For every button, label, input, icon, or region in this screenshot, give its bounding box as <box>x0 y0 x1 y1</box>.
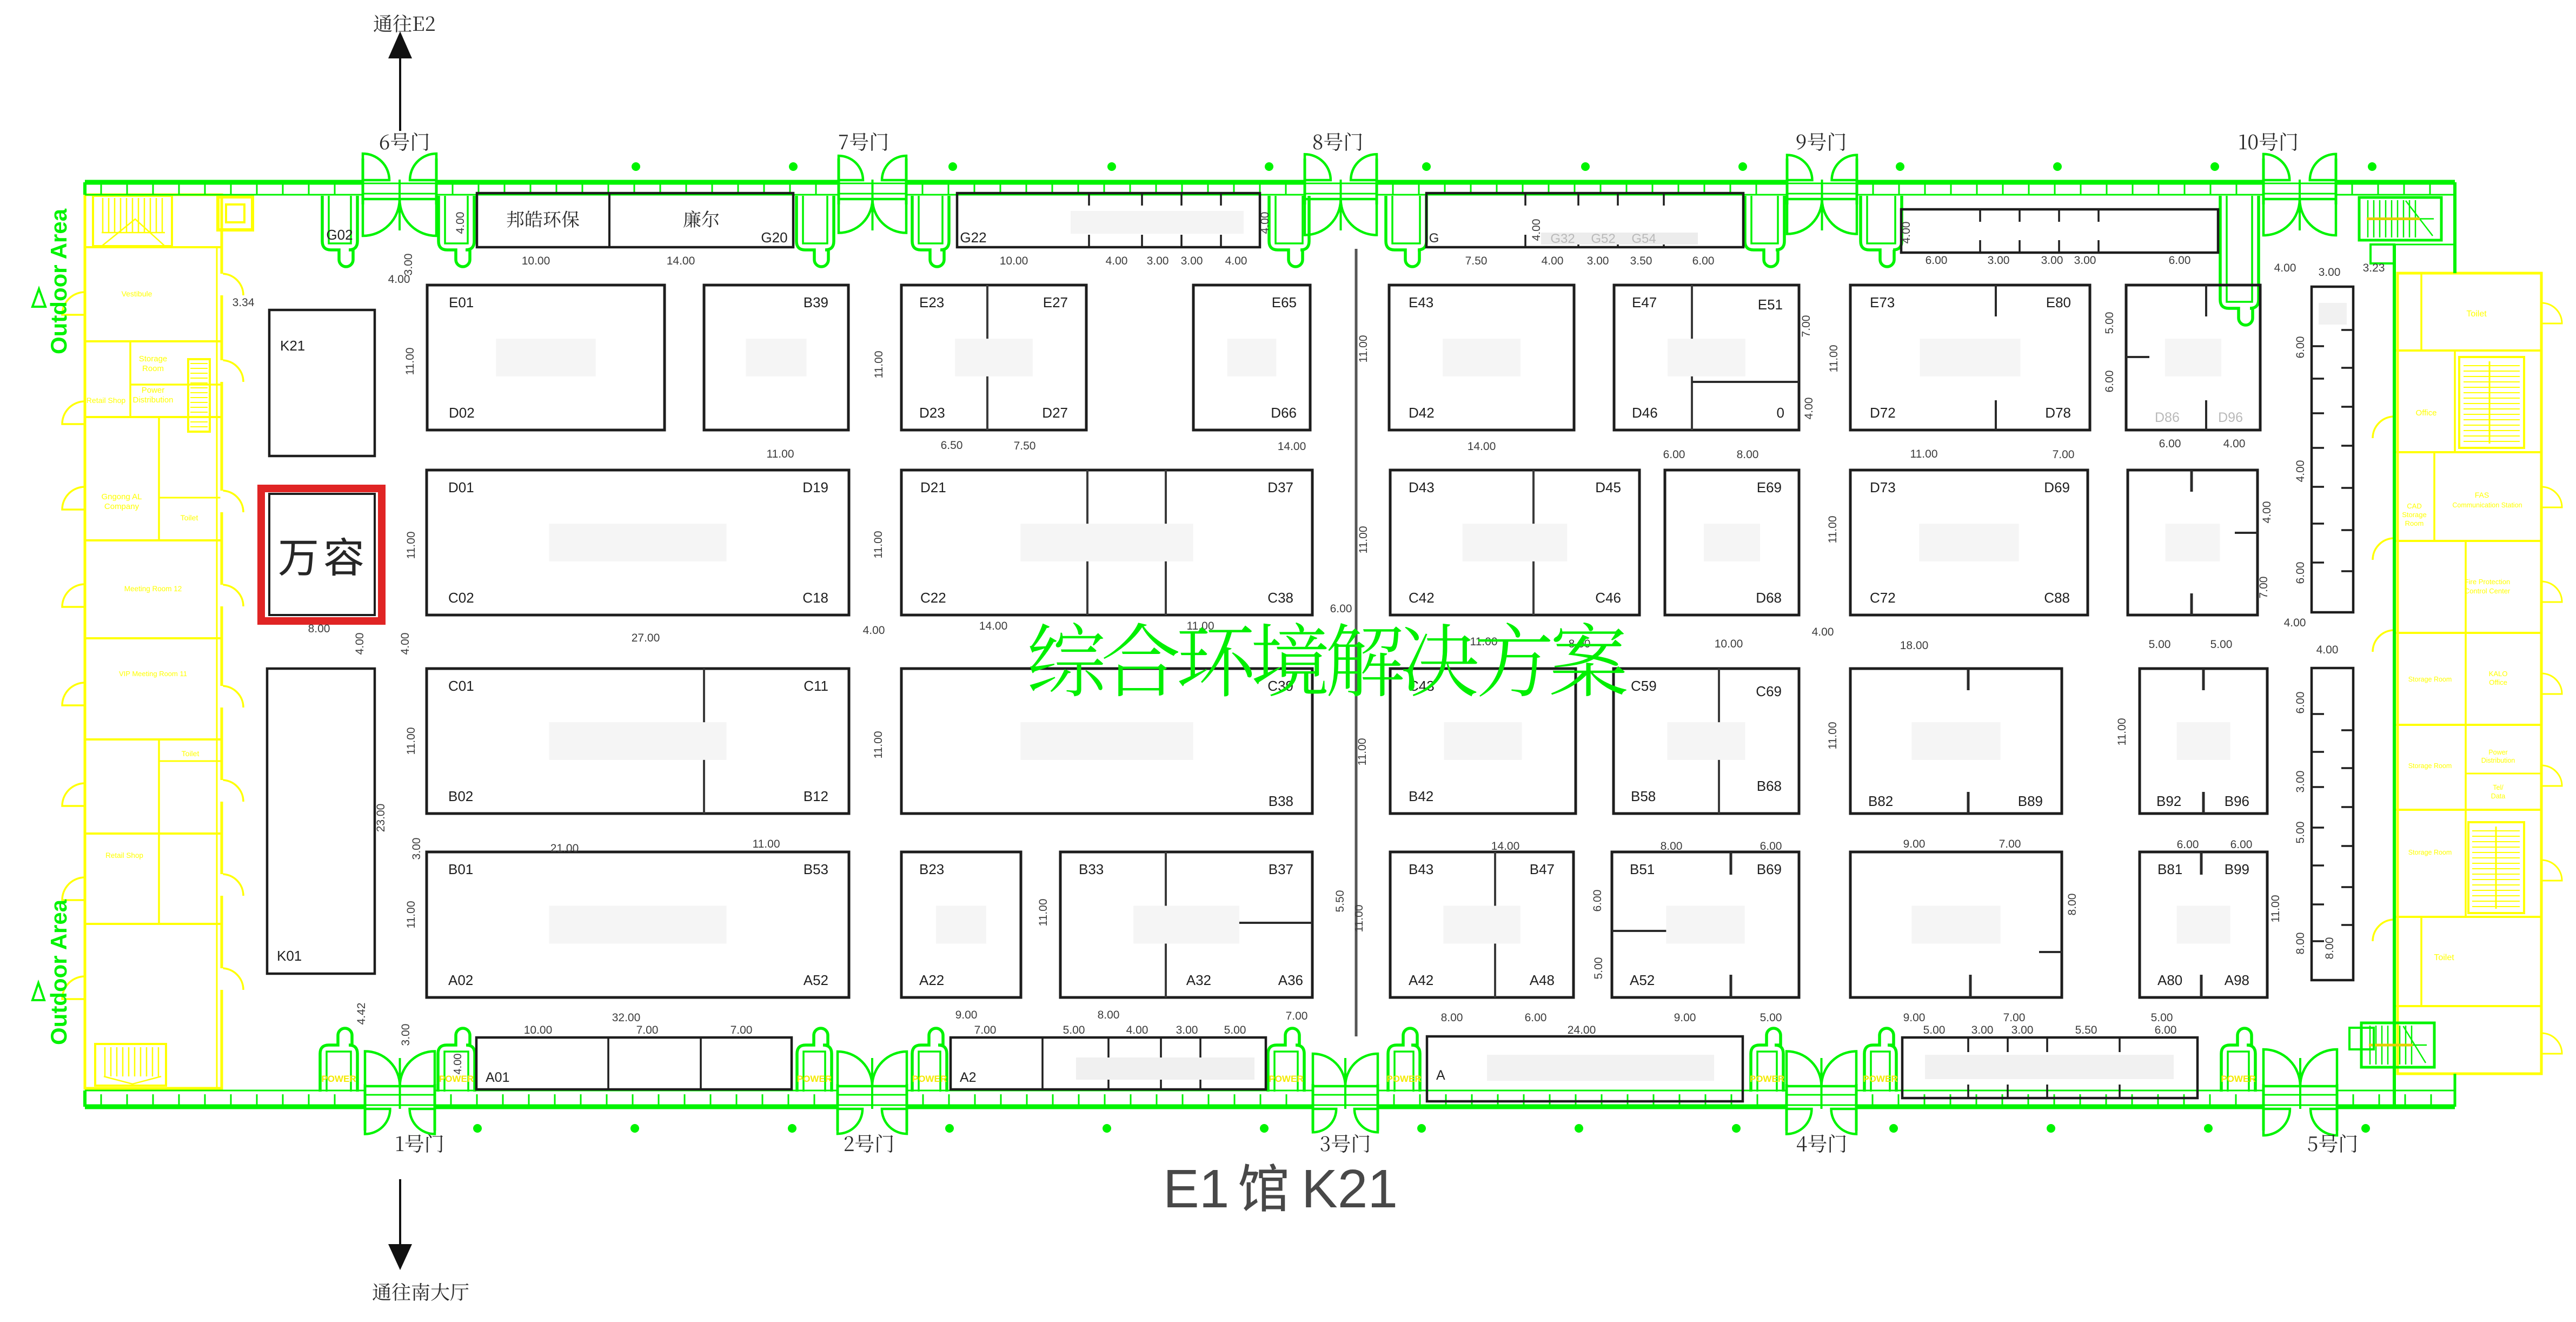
svg-text:23.00: 23.00 <box>375 804 387 832</box>
svg-text:5.50: 5.50 <box>1334 890 1346 913</box>
svg-text:11.00: 11.00 <box>1037 899 1050 927</box>
svg-text:Toilet: Toilet <box>2434 953 2454 962</box>
svg-text:6.00: 6.00 <box>2103 371 2116 393</box>
svg-text:G32: G32 <box>1550 232 1575 246</box>
svg-text:D78: D78 <box>2045 405 2071 421</box>
svg-text:POWER: POWER <box>1863 1074 1897 1084</box>
svg-text:11.00: 11.00 <box>1910 448 1938 460</box>
svg-text:Room: Room <box>2405 519 2424 527</box>
svg-text:6.00: 6.00 <box>2177 838 2199 851</box>
svg-text:B39: B39 <box>804 294 828 310</box>
svg-text:G: G <box>1429 231 1439 246</box>
svg-text:B38: B38 <box>1269 793 1293 809</box>
svg-text:8.00: 8.00 <box>1661 840 1683 852</box>
svg-text:11.00: 11.00 <box>2269 895 2282 923</box>
svg-text:A36: A36 <box>1278 972 1303 988</box>
svg-text:D42: D42 <box>1409 405 1435 421</box>
svg-text:8.00: 8.00 <box>2066 894 2079 916</box>
svg-text:4.00: 4.00 <box>454 212 467 234</box>
svg-text:6.00: 6.00 <box>2230 838 2253 851</box>
svg-text:POWER: POWER <box>797 1074 832 1084</box>
svg-text:C42: C42 <box>1409 590 1435 606</box>
svg-text:E01: E01 <box>449 294 474 310</box>
svg-text:POWER: POWER <box>912 1074 947 1084</box>
svg-text:3.00: 3.00 <box>400 1024 412 1046</box>
svg-text:7.50: 7.50 <box>1465 255 1488 267</box>
svg-text:9.00: 9.00 <box>955 1009 978 1021</box>
svg-text:D21: D21 <box>920 479 946 495</box>
svg-text:7.50: 7.50 <box>1014 440 1036 452</box>
svg-text:5.00: 5.00 <box>1063 1024 1085 1036</box>
svg-text:11.00: 11.00 <box>753 838 780 850</box>
svg-text:Meeting Room 12: Meeting Room 12 <box>124 585 182 593</box>
svg-text:E69: E69 <box>1757 479 1782 495</box>
svg-text:11.00: 11.00 <box>1357 335 1370 363</box>
svg-text:Outdoor Area: Outdoor Area <box>46 899 71 1045</box>
svg-text:POWER: POWER <box>1386 1074 1421 1084</box>
svg-text:A52: A52 <box>1630 972 1655 988</box>
svg-text:D72: D72 <box>1870 405 1896 421</box>
svg-text:B01: B01 <box>448 861 473 877</box>
svg-text:D86: D86 <box>2155 410 2180 425</box>
svg-text:Retail Shop: Retail Shop <box>105 851 143 860</box>
svg-text:CAD: CAD <box>2407 502 2421 510</box>
svg-text:POWER: POWER <box>321 1074 356 1084</box>
svg-text:4.00: 4.00 <box>354 633 366 655</box>
svg-text:B99: B99 <box>2225 861 2249 877</box>
svg-text:4.00: 4.00 <box>2261 501 2273 524</box>
svg-text:Outdoor Area: Outdoor Area <box>46 208 71 354</box>
svg-text:4.00: 4.00 <box>1126 1024 1148 1036</box>
svg-text:Storage: Storage <box>139 354 168 363</box>
svg-text:Vestibule: Vestibule <box>122 289 152 298</box>
svg-text:Distribution: Distribution <box>2481 757 2515 764</box>
svg-text:3.00: 3.00 <box>1587 255 1609 267</box>
svg-text:D37: D37 <box>1267 479 1293 495</box>
svg-text:14.00: 14.00 <box>667 255 695 267</box>
svg-text:4.00: 4.00 <box>1812 626 1834 638</box>
svg-text:4.00: 4.00 <box>2316 644 2339 656</box>
svg-text:3.00: 3.00 <box>2041 254 2063 267</box>
svg-text:7.00: 7.00 <box>1800 315 1813 338</box>
svg-text:B43: B43 <box>1409 861 1433 877</box>
svg-text:A: A <box>1436 1068 1445 1083</box>
svg-text:24.00: 24.00 <box>1568 1024 1596 1036</box>
svg-text:7.00: 7.00 <box>2003 1012 2026 1024</box>
svg-text:9.00: 9.00 <box>1903 838 1926 850</box>
svg-text:5.00: 5.00 <box>2294 822 2307 844</box>
svg-text:3.00: 3.00 <box>2011 1024 2034 1036</box>
svg-text:4.00: 4.00 <box>1803 398 1815 420</box>
svg-text:6.00: 6.00 <box>1663 448 1685 461</box>
svg-text:6.00: 6.00 <box>2294 692 2307 714</box>
svg-text:8.00: 8.00 <box>1441 1012 1463 1024</box>
svg-text:C59: C59 <box>1631 678 1657 694</box>
svg-text:3.23: 3.23 <box>2363 262 2385 274</box>
svg-text:Distribution: Distribution <box>132 395 173 405</box>
svg-text:6.00: 6.00 <box>2169 254 2191 267</box>
svg-text:B37: B37 <box>1269 861 1293 877</box>
svg-text:C02: C02 <box>448 590 474 606</box>
svg-text:E80: E80 <box>2046 294 2071 310</box>
svg-text:0: 0 <box>1777 405 1784 421</box>
svg-text:B12: B12 <box>804 788 828 804</box>
svg-text:3.00: 3.00 <box>1176 1024 1198 1036</box>
svg-text:5.00: 5.00 <box>1923 1024 1946 1036</box>
svg-text:B42: B42 <box>1409 788 1433 804</box>
svg-text:5.00: 5.00 <box>2149 638 2171 651</box>
svg-text:14.00: 14.00 <box>1278 440 1306 453</box>
svg-text:3.00: 3.00 <box>410 838 423 860</box>
svg-text:8.00: 8.00 <box>1737 448 1759 461</box>
svg-text:Toilet: Toilet <box>181 513 198 522</box>
svg-text:A01: A01 <box>486 1070 509 1085</box>
svg-text:VIP Meeting Room 11: VIP Meeting Room 11 <box>119 670 187 678</box>
svg-text:4.00: 4.00 <box>452 1054 464 1075</box>
svg-text:D66: D66 <box>1271 405 1297 421</box>
svg-text:3.00: 3.00 <box>402 254 415 276</box>
svg-text:5.00: 5.00 <box>1224 1024 1246 1036</box>
svg-text:11.00: 11.00 <box>405 728 417 755</box>
svg-text:6.00: 6.00 <box>1926 254 1948 267</box>
svg-text:B89: B89 <box>2018 793 2043 809</box>
svg-text:4.00: 4.00 <box>2274 262 2296 274</box>
svg-text:4.00: 4.00 <box>2284 617 2306 629</box>
svg-text:3.34: 3.34 <box>233 296 255 309</box>
svg-text:4.00: 4.00 <box>1542 255 1564 267</box>
svg-text:8.00: 8.00 <box>308 623 330 635</box>
svg-text:8.00: 8.00 <box>2294 933 2307 955</box>
svg-text:A42: A42 <box>1409 972 1433 988</box>
svg-text:B33: B33 <box>1079 861 1104 877</box>
svg-text:E47: E47 <box>1632 294 1657 310</box>
svg-text:Tel/: Tel/ <box>2493 784 2504 791</box>
svg-text:4.00: 4.00 <box>1106 255 1128 267</box>
svg-text:B23: B23 <box>919 861 944 877</box>
svg-text:10.00: 10.00 <box>1715 638 1743 650</box>
svg-text:3.00: 3.00 <box>1971 1024 1994 1036</box>
svg-text:A98: A98 <box>2225 972 2249 988</box>
svg-text:POWER: POWER <box>439 1074 474 1084</box>
svg-text:Office: Office <box>2489 678 2507 686</box>
svg-text:3.00: 3.00 <box>2074 254 2096 267</box>
svg-text:C72: C72 <box>1870 590 1896 606</box>
svg-text:7.00: 7.00 <box>1286 1010 1308 1022</box>
svg-text:10.00: 10.00 <box>524 1024 553 1036</box>
svg-text:D23: D23 <box>919 405 945 421</box>
svg-text:11.00: 11.00 <box>872 731 885 759</box>
svg-text:14.00: 14.00 <box>1468 440 1496 453</box>
svg-text:B51: B51 <box>1630 861 1655 877</box>
svg-text:C69: C69 <box>1756 683 1782 699</box>
svg-text:5.50: 5.50 <box>2075 1024 2097 1036</box>
svg-text:D46: D46 <box>1632 405 1658 421</box>
svg-text:3.00: 3.00 <box>1147 255 1169 267</box>
svg-text:6.00: 6.00 <box>1330 603 1352 615</box>
svg-text:A52: A52 <box>804 972 828 988</box>
svg-text:11.00: 11.00 <box>872 531 885 559</box>
svg-text:8.00: 8.00 <box>1098 1009 1120 1021</box>
svg-text:Power: Power <box>142 386 165 395</box>
svg-text:3.00: 3.00 <box>2319 266 2341 279</box>
svg-text:Toilet: Toilet <box>182 749 200 758</box>
svg-text:B82: B82 <box>1868 793 1893 809</box>
svg-text:11.00: 11.00 <box>1828 345 1840 373</box>
svg-text:Company: Company <box>104 502 140 511</box>
svg-text:11.00: 11.00 <box>767 448 794 460</box>
svg-text:D68: D68 <box>1756 590 1782 606</box>
svg-text:7.00: 7.00 <box>731 1024 753 1036</box>
svg-text:6.00: 6.00 <box>1760 840 1782 852</box>
svg-text:G52: G52 <box>1591 232 1615 246</box>
svg-text:5.00: 5.00 <box>2151 1012 2173 1024</box>
svg-text:C18: C18 <box>802 590 828 606</box>
svg-text:Storage Room: Storage Room <box>2408 849 2452 856</box>
svg-text:6.00: 6.00 <box>1591 890 1604 912</box>
svg-text:B02: B02 <box>448 788 473 804</box>
svg-text:A2: A2 <box>960 1070 977 1085</box>
svg-text:Gngong AL: Gngong AL <box>101 492 142 501</box>
svg-text:27.00: 27.00 <box>632 632 660 644</box>
svg-text:5.00: 5.00 <box>2103 312 2116 334</box>
svg-text:D69: D69 <box>2044 479 2070 495</box>
svg-text:POWER: POWER <box>1750 1074 1784 1084</box>
svg-text:D19: D19 <box>802 479 828 495</box>
svg-text:5.00: 5.00 <box>2210 638 2233 651</box>
svg-text:Control Center: Control Center <box>2465 587 2511 595</box>
svg-text:Room: Room <box>142 364 164 373</box>
svg-text:11.00: 11.00 <box>1357 526 1370 554</box>
svg-text:11.00: 11.00 <box>1353 905 1365 933</box>
svg-text:11.00: 11.00 <box>1470 636 1498 648</box>
svg-text:Power: Power <box>2488 749 2507 756</box>
svg-text:E51: E51 <box>1758 296 1783 313</box>
svg-text:5.00: 5.00 <box>1760 1012 1782 1024</box>
svg-text:9.00: 9.00 <box>1674 1012 1696 1024</box>
svg-text:6.00: 6.00 <box>1692 255 1715 267</box>
svg-text:E43: E43 <box>1409 294 1433 310</box>
svg-text:Retail Shop: Retail Shop <box>87 396 126 405</box>
svg-text:6.50: 6.50 <box>941 439 963 452</box>
svg-text:C38: C38 <box>1267 590 1293 606</box>
svg-text:G02: G02 <box>326 227 353 243</box>
svg-text:FAS: FAS <box>2475 491 2489 499</box>
svg-text:6.00: 6.00 <box>2159 438 2181 450</box>
svg-text:4.00: 4.00 <box>1900 222 1913 244</box>
svg-text:32.00: 32.00 <box>612 1012 641 1024</box>
svg-text:9.00: 9.00 <box>1903 1012 1926 1024</box>
svg-text:B47: B47 <box>1530 861 1555 877</box>
svg-text:Storage Room: Storage Room <box>2408 676 2452 683</box>
svg-text:B69: B69 <box>1757 861 1782 877</box>
svg-text:18.00: 18.00 <box>1900 639 1929 652</box>
svg-text:B58: B58 <box>1631 788 1656 804</box>
svg-text:B96: B96 <box>2225 793 2249 809</box>
svg-text:E65: E65 <box>1272 294 1297 310</box>
svg-text:14.00: 14.00 <box>1491 840 1520 852</box>
svg-text:C46: C46 <box>1595 590 1621 606</box>
svg-text:K01: K01 <box>277 948 302 964</box>
svg-text:G20: G20 <box>761 229 787 246</box>
svg-text:3.00: 3.00 <box>1988 254 2010 267</box>
svg-text:A48: A48 <box>1530 972 1555 988</box>
svg-text:K21: K21 <box>1302 1159 1398 1219</box>
svg-text:C01: C01 <box>448 678 474 694</box>
svg-text:G22: G22 <box>960 229 986 246</box>
svg-text:B92: B92 <box>2156 793 2181 809</box>
svg-text:D96: D96 <box>2218 410 2243 425</box>
svg-text:11.00: 11.00 <box>405 901 417 929</box>
svg-text:11.00: 11.00 <box>2116 718 2128 746</box>
svg-text:Storage Room: Storage Room <box>2408 762 2452 770</box>
svg-text:A02: A02 <box>448 972 473 988</box>
svg-text:D27: D27 <box>1042 405 1068 421</box>
svg-text:A22: A22 <box>919 972 944 988</box>
svg-text:C88: C88 <box>2044 590 2070 606</box>
svg-text:Communication Station: Communication Station <box>2452 501 2522 509</box>
svg-text:7.00: 7.00 <box>636 1024 659 1036</box>
svg-text:10.00: 10.00 <box>1000 255 1028 267</box>
svg-text:6.00: 6.00 <box>2294 562 2307 584</box>
svg-text:B81: B81 <box>2157 861 2182 877</box>
svg-text:4.00: 4.00 <box>1225 255 1247 267</box>
svg-text:11.00: 11.00 <box>1827 722 1839 750</box>
svg-text:7.00: 7.00 <box>2258 577 2270 599</box>
svg-text:Toilet: Toilet <box>2466 309 2487 319</box>
svg-text:B53: B53 <box>804 861 828 877</box>
svg-text:E73: E73 <box>1870 294 1895 310</box>
svg-text:KALO: KALO <box>2489 670 2508 678</box>
svg-text:4.00: 4.00 <box>1530 219 1543 241</box>
svg-text:Storage: Storage <box>2402 511 2427 519</box>
svg-text:3.50: 3.50 <box>1630 255 1652 267</box>
svg-text:A80: A80 <box>2157 972 2182 988</box>
svg-text:10.00: 10.00 <box>522 255 550 267</box>
svg-text:21.00: 21.00 <box>550 842 579 855</box>
svg-text:11.00: 11.00 <box>404 348 416 375</box>
svg-text:8.00: 8.00 <box>2323 937 2336 960</box>
svg-text:4.00: 4.00 <box>1259 212 1271 234</box>
svg-text:6.00: 6.00 <box>2155 1024 2177 1036</box>
svg-text:4.00: 4.00 <box>2294 460 2307 482</box>
svg-text:E1: E1 <box>1163 1159 1229 1219</box>
svg-text:K21: K21 <box>280 338 305 354</box>
svg-text:E27: E27 <box>1043 294 1068 310</box>
svg-text:B68: B68 <box>1757 778 1782 794</box>
svg-text:D43: D43 <box>1409 479 1435 495</box>
svg-text:D02: D02 <box>449 405 475 421</box>
svg-text:POWER: POWER <box>2221 1074 2255 1084</box>
svg-text:4.00: 4.00 <box>2223 438 2246 450</box>
svg-text:11.00: 11.00 <box>405 532 417 559</box>
svg-text:11.00: 11.00 <box>1827 516 1839 544</box>
svg-text:Fire Protection: Fire Protection <box>2465 578 2511 586</box>
svg-text:D01: D01 <box>448 479 474 495</box>
svg-text:7.00: 7.00 <box>2053 448 2075 461</box>
svg-text:A32: A32 <box>1186 972 1211 988</box>
svg-text:14.00: 14.00 <box>979 620 1008 632</box>
svg-text:6.00: 6.00 <box>1525 1012 1547 1024</box>
svg-text:POWER: POWER <box>1269 1074 1303 1084</box>
svg-text:5.00: 5.00 <box>1592 957 1605 980</box>
svg-text:7.00: 7.00 <box>1999 838 2021 850</box>
svg-text:D45: D45 <box>1595 479 1621 495</box>
svg-text:Office: Office <box>2416 408 2437 418</box>
svg-text:E23: E23 <box>919 294 944 310</box>
svg-text:G54: G54 <box>1631 232 1656 246</box>
svg-text:11.00: 11.00 <box>873 351 885 379</box>
svg-text:3.00: 3.00 <box>2294 771 2307 793</box>
svg-text:4.42: 4.42 <box>355 1003 368 1025</box>
svg-text:Data: Data <box>2491 792 2505 800</box>
svg-text:4.00: 4.00 <box>399 633 411 655</box>
svg-text:11.00: 11.00 <box>1356 738 1369 766</box>
svg-text:D73: D73 <box>1870 479 1896 495</box>
svg-text:3.00: 3.00 <box>1181 255 1203 267</box>
svg-text:4.00: 4.00 <box>863 624 885 637</box>
svg-text:7.00: 7.00 <box>974 1024 997 1036</box>
svg-text:C11: C11 <box>804 678 828 694</box>
svg-text:C22: C22 <box>920 590 946 606</box>
svg-text:6.00: 6.00 <box>2294 336 2307 359</box>
